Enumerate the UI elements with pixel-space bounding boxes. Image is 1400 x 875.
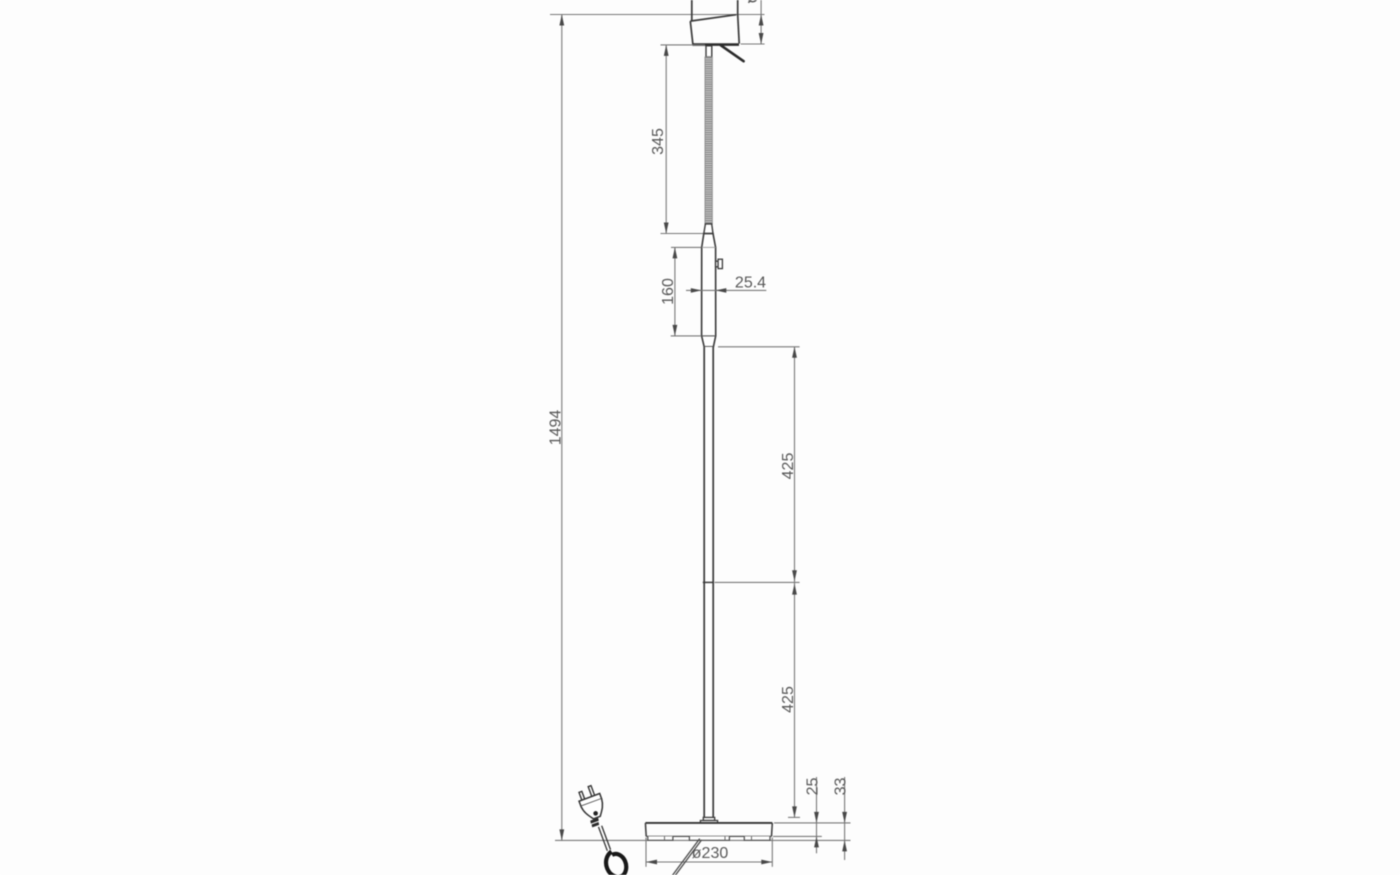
svg-text:33: 33 [833,778,850,796]
svg-text:160: 160 [660,278,677,305]
svg-text:ø230: ø230 [692,845,729,862]
svg-text:425: 425 [780,453,797,480]
svg-text:1494: 1494 [547,410,564,446]
svg-text:25: 25 [804,778,821,796]
svg-text:425: 425 [780,686,797,713]
svg-text:345: 345 [650,128,667,155]
svg-text:25.4: 25.4 [735,275,766,292]
